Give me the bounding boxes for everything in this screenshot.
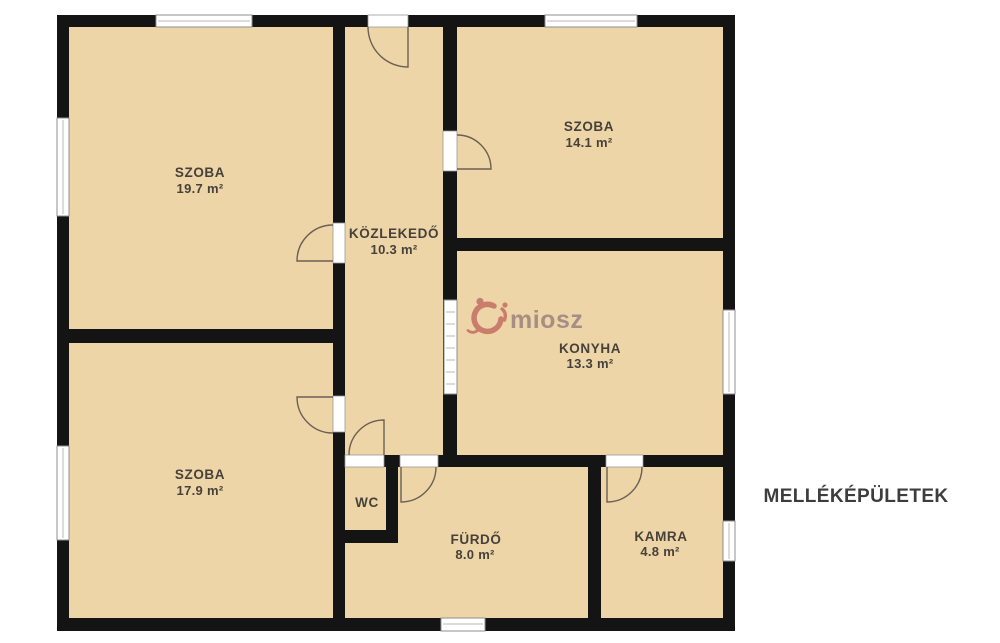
- floor-plan: SZOBA 19.7 m² SZOBA 14.1 m² KÖZLEKEDŐ 10…: [0, 0, 1000, 643]
- window-konyha-right: [723, 310, 735, 394]
- area-label-szoba19: 19.7 m²: [177, 181, 224, 196]
- door-opening-entrance: [368, 15, 408, 27]
- room-label-kozlekedo: KÖZLEKEDŐ: [349, 226, 439, 241]
- door-opening-kamra: [606, 455, 643, 467]
- window-szoba17-left: [57, 446, 69, 540]
- interior-wall-wc-right: [386, 455, 398, 543]
- interior-wall-konyha-top: [457, 238, 723, 251]
- area-label-furdo: 8.0 m²: [455, 547, 495, 562]
- window-szoba19-left: [57, 118, 69, 216]
- room-label-furdo: FÜRDŐ: [451, 532, 502, 547]
- outbuildings-label: MELLÉKÉPÜLETEK: [763, 485, 948, 507]
- room-label-kamra: KAMRA: [634, 529, 687, 544]
- room-label-wc: WC: [355, 495, 379, 510]
- interior-wall-vertical-left: [333, 27, 345, 618]
- room-label-szoba14: SZOBA: [564, 119, 614, 134]
- room-label-szoba19: SZOBA: [175, 165, 225, 180]
- interior-wall-wc-bottom: [333, 530, 398, 543]
- miosz-wordmark: miosz: [510, 306, 583, 334]
- area-label-kamra: 4.8 m²: [640, 544, 680, 559]
- room-label-szoba17: SZOBA: [175, 467, 225, 482]
- area-label-szoba17: 17.9 m²: [177, 483, 224, 498]
- window-furdo-bottom: [441, 618, 485, 631]
- door-opening-szoba17: [333, 396, 345, 432]
- room-label-konyha: KONYHA: [559, 341, 621, 356]
- floor-plan-page: SZOBA 19.7 m² SZOBA 14.1 m² KÖZLEKEDŐ 10…: [0, 0, 1000, 643]
- door-opening-szoba14: [443, 131, 457, 171]
- area-label-szoba14: 14.1 m²: [566, 135, 613, 150]
- interior-wall-szoba-divider: [69, 329, 333, 343]
- door-opening-wc: [345, 455, 384, 467]
- window-szoba14-top: [545, 15, 637, 27]
- door-opening-furdo: [400, 455, 438, 467]
- area-label-kozlekedo: 10.3 m²: [371, 242, 418, 257]
- exterior-wall-bottom: [57, 618, 735, 631]
- glazed-opening-konyha: [444, 300, 457, 394]
- door-opening-szoba19: [333, 223, 345, 263]
- area-label-konyha: 13.3 m²: [567, 356, 614, 371]
- interior-wall-furdo-kamra: [588, 467, 601, 618]
- window-szoba19-top: [156, 15, 252, 27]
- window-kamra-right: [723, 521, 735, 561]
